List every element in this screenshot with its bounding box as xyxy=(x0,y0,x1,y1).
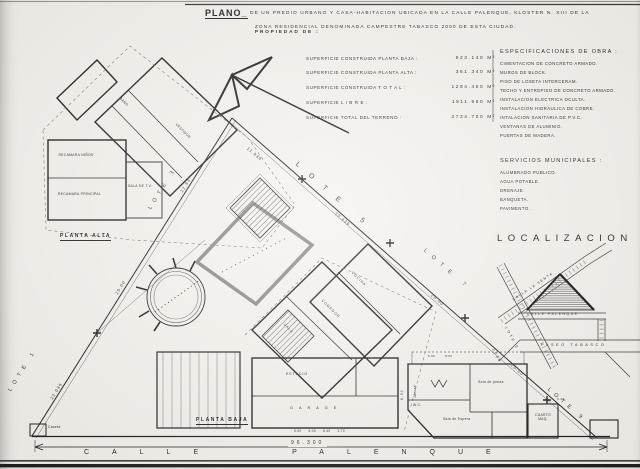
map-paseo-tabasco-label: PASEO TABASCO xyxy=(541,343,606,347)
dim-detalle-top: 5.90 8.50 xyxy=(428,355,452,358)
calle-palenque-street-label: CALLE PALENQUE xyxy=(84,449,514,457)
especificaciones-item: PUERTAS DE MADERA. xyxy=(500,134,556,139)
room-sala-juntas: Sala de juntas xyxy=(478,381,504,385)
closet-zigzag xyxy=(431,380,447,387)
area-row-value: 2734.700 M² xyxy=(424,115,496,121)
planta-baja-caption: PLANTA BAJA xyxy=(196,418,248,425)
room-recamara-ninos: RECAMARA NIÑOS xyxy=(58,153,94,157)
area-row-value: 1284.480 M² xyxy=(424,85,496,91)
especificaciones-item: PISO DE LOSETA INTERCERAM. xyxy=(500,80,578,85)
map-calle-palenque-label: CALLE PALENQUE xyxy=(527,313,578,317)
dim-maq: 3.40 xyxy=(557,398,564,401)
area-row-value: 1811.560 M² xyxy=(424,100,496,106)
dim-baja-bottom: 5.00 5.00 8.40 3.70 xyxy=(294,430,345,434)
servicios-item: PAVIMENTO. xyxy=(500,207,530,212)
room-sala-espera: Sala de Espera xyxy=(443,418,470,422)
especificaciones-item: CIMENTACION DE CONCRETO ARMADO. xyxy=(500,62,598,67)
servicios-title: SERVICIOS MUNICIPALES : xyxy=(500,158,602,164)
detail-building xyxy=(30,352,618,438)
room-recamara-principal: RECAMARA PRINCIPAL xyxy=(58,192,94,196)
area-row-value: 923.140 M² xyxy=(424,56,496,62)
area-row-label: SUPERFICIE CONSTRUIDA PLANTA ALTA : xyxy=(306,70,417,75)
room-sala-tv: SALA DE T.V. xyxy=(128,184,152,188)
especificaciones-item: MUROS DE BLOCK. xyxy=(500,71,547,76)
map-street-right xyxy=(598,319,605,341)
stairwell-hatch-baja xyxy=(262,310,314,362)
area-row-label: SUPERFICIE CONSTRUIDA T O T A L : xyxy=(306,85,406,90)
room-wc: W.C. xyxy=(413,404,422,408)
especificaciones-item: TECHO Y ENTREPISO DE CONCRETO ARMADO. xyxy=(500,89,616,94)
dim-lateral-890: 8.90 xyxy=(401,389,405,400)
especificaciones-item: VENTANAS DE ALUMINIO. xyxy=(500,125,562,130)
room-jacuzzi: Jacuzzi xyxy=(414,385,418,398)
area-row-label: SUPERFICIE L I B R E : xyxy=(306,100,368,105)
page-title: PLANO_ xyxy=(205,8,248,19)
localizacion-map xyxy=(497,243,640,377)
area-row-label: SUPERFICIE CONSTRUIDA PLANTA BAJA : xyxy=(306,56,418,61)
servicios-item: AGUA POTABLE. xyxy=(500,180,540,185)
planta-alta-caption: PLANTA ALTA xyxy=(60,234,111,241)
room-garage: GARAGE xyxy=(290,406,342,411)
map-lot-triangle xyxy=(527,274,594,310)
title-owner-label: PROPIEDAD DE : xyxy=(255,30,320,35)
area-row-value: 361.340 M² xyxy=(424,70,496,76)
servicios-item: BANQUETA. xyxy=(500,198,529,203)
caseta-label: Caseta xyxy=(48,426,61,430)
localizacion-title: LOCALIZACION xyxy=(497,234,633,245)
title-line-2: ZONA RESIDENCIAL DENOMINADA CAMPESTRE TA… xyxy=(250,19,517,36)
servicios-item: ALUMBRADO PUBLICO. xyxy=(500,171,557,176)
kiosco-circle xyxy=(136,258,205,331)
area-row-label: SUPERFICIE TOTAL DEL TERRENO : xyxy=(306,115,402,120)
plan-sheet: PLANO_ DE UN PREDIO URBANO Y CASA-HABITA… xyxy=(0,0,640,469)
stairwell-hatch-alta xyxy=(230,178,290,238)
especificaciones-title: ESPECIFICACIONES DE OBRA : xyxy=(500,49,618,55)
title-line-1: DE UN PREDIO URBANO Y CASA-HABITACION UB… xyxy=(250,11,590,17)
especificaciones-item: INTALACION SANITARIA DE P.V.C. xyxy=(500,116,582,121)
especificaciones-item: INSTALACION ELECTRICA OCULTA. xyxy=(500,98,586,103)
planta-baja-building xyxy=(157,244,436,432)
especificaciones-item: INSTALACION HIDRAULICA DE COBRE. xyxy=(500,107,595,112)
servicios-item: DRENAJE. xyxy=(500,189,525,194)
room-estudio: ESTUDIO xyxy=(286,372,308,376)
dim-base-96300: 96.300 xyxy=(288,441,327,447)
cuarto-maq-label: CUARTO MAQ. xyxy=(530,414,556,422)
title-line-2-text: ZONA RESIDENCIAL DENOMINADA CAMPESTRE TA… xyxy=(255,25,517,30)
